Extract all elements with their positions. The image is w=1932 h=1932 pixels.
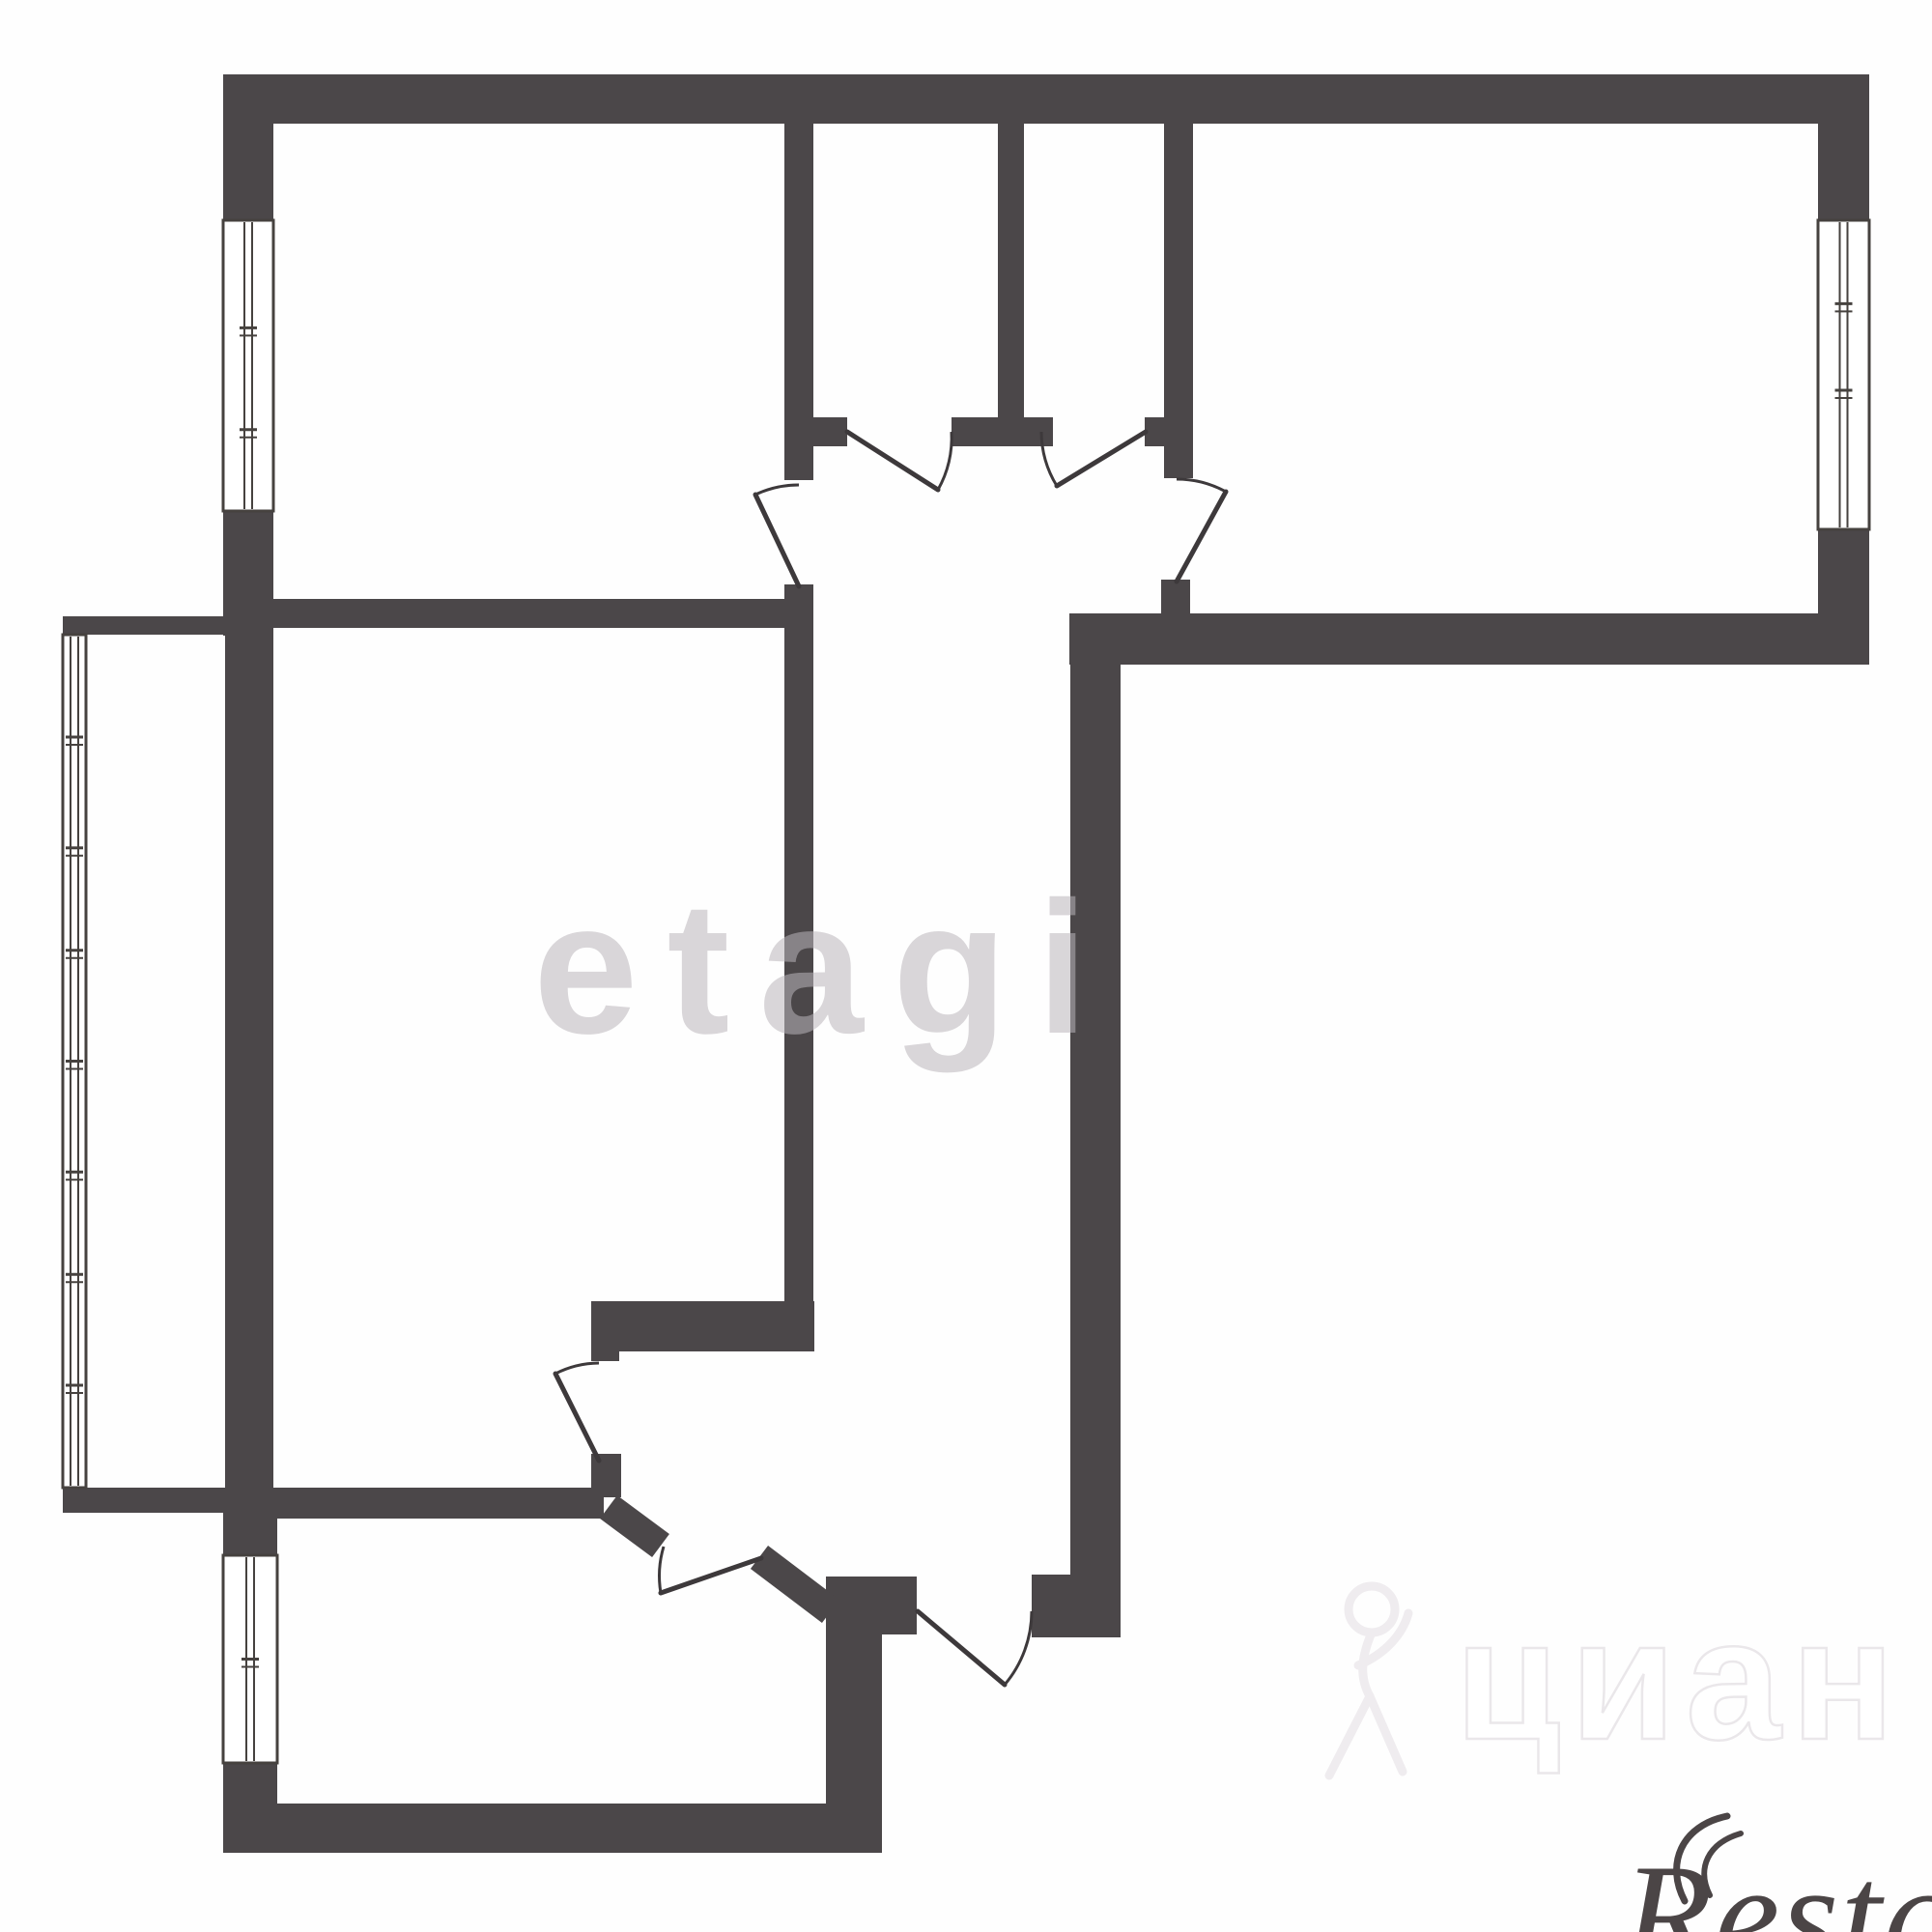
left-wall-mid (223, 511, 273, 636)
door-living-room-arc (555, 1363, 599, 1374)
left-wall-upper (223, 74, 273, 220)
living-bottomroom-divider (223, 1488, 604, 1519)
wall-c-stub (1161, 580, 1190, 613)
cian-person-icon (1302, 1573, 1437, 1795)
door-topright-room-leaf (1177, 492, 1226, 582)
jamb-a (813, 417, 847, 446)
watermark-etagi: etagi (533, 860, 1118, 1076)
bottomroom-bottom-wall (223, 1804, 882, 1853)
hall-corner-block (826, 1577, 917, 1634)
living-door-bottom-jamb (591, 1454, 621, 1497)
right-wall-upper (1818, 74, 1869, 220)
watermark-cian-text: циан (1455, 1580, 1904, 1778)
door-small-room-1-leaf (847, 432, 938, 490)
door-entrance-leaf (918, 1611, 1005, 1685)
balcony-bottom-wall (63, 1488, 223, 1513)
hall-step-wall (591, 1301, 814, 1351)
rooms-divider-b (998, 124, 1024, 417)
door-topleft-room-arc (755, 485, 799, 495)
rooms-divider-a (784, 124, 813, 480)
right-wall-lower (1818, 529, 1869, 665)
door-bottom-room-arc (660, 1547, 664, 1593)
door-small-room-1-arc (938, 432, 952, 490)
watermark-restate-text: Restate (1623, 1832, 1932, 1932)
hall-right-wall-foot (1032, 1575, 1070, 1637)
floorplan-canvas: etagi циан Restate (0, 0, 1932, 1932)
window-topright-room (1818, 220, 1869, 529)
hall-right-wall (1070, 613, 1121, 1637)
door-small-room-2-leaf (1057, 432, 1146, 486)
chamfer-wall-left (609, 1507, 661, 1546)
topright-room-bottom-wall (1069, 613, 1869, 665)
door-living-room-leaf (555, 1374, 599, 1461)
watermark-cian: циан (1302, 1573, 1904, 1795)
window-topleft-room (223, 220, 273, 511)
chamfer-wall-right (759, 1557, 831, 1611)
watermark-etagi-text: etagi (533, 863, 1118, 1073)
door-bottom-room-leaf (661, 1558, 761, 1593)
watermark-restate: Restate (1592, 1804, 1932, 1932)
bottomroom-right-wall (826, 1606, 882, 1814)
bottomroom-left-wall-upper (223, 1504, 277, 1555)
topleft-room-bottom-wall (273, 599, 787, 628)
top-wall (223, 74, 1869, 124)
door-topright-room-arc (1177, 479, 1226, 492)
living-left-wall (225, 635, 273, 1488)
jamb-mid (952, 417, 1053, 446)
balcony-top-wall (63, 616, 225, 635)
living-door-top-jamb (591, 1351, 619, 1361)
door-topleft-room-leaf (755, 495, 799, 586)
door-entrance-arc (1005, 1611, 1032, 1685)
rooms-divider-c (1164, 124, 1193, 478)
